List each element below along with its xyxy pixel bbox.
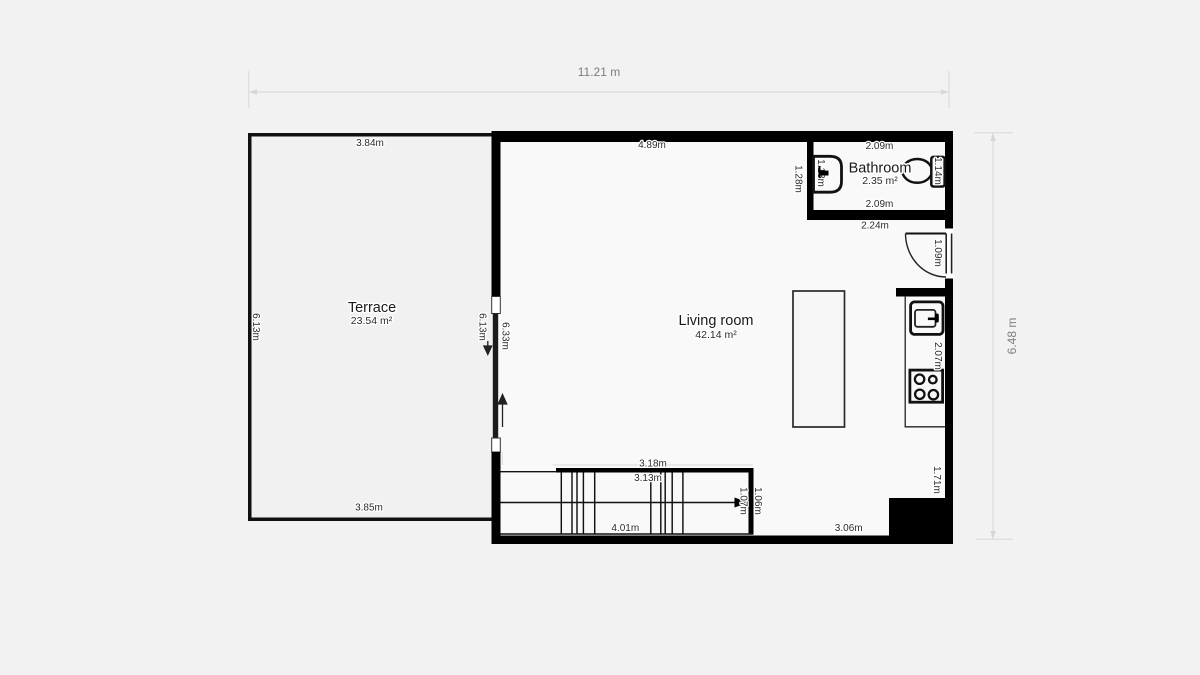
svg-text:2.09m: 2.09m [866, 199, 894, 210]
svg-text:4.01m: 4.01m [611, 523, 639, 534]
svg-text:1.14m: 1.14m [932, 157, 943, 185]
svg-text:Living room: Living room [679, 313, 754, 329]
svg-text:3.13m: 3.13m [634, 473, 662, 484]
svg-text:1.07m: 1.07m [737, 487, 748, 515]
svg-text:2.09m: 2.09m [866, 141, 894, 152]
svg-text:Terrace: Terrace [348, 300, 396, 316]
svg-text:3.18m: 3.18m [639, 459, 667, 470]
svg-text:1.28m: 1.28m [792, 165, 803, 193]
svg-text:3.84m: 3.84m [356, 138, 384, 149]
svg-text:2.07m: 2.07m [932, 342, 943, 370]
svg-text:6.48 m: 6.48 m [1005, 318, 1019, 355]
svg-text:6.13m: 6.13m [250, 313, 261, 341]
svg-text:11.21 m: 11.21 m [578, 65, 620, 79]
svg-text:23.54 m²: 23.54 m² [351, 315, 393, 327]
svg-text:2.35 m²: 2.35 m² [862, 175, 898, 187]
svg-text:42.14 m²: 42.14 m² [695, 329, 737, 341]
svg-text:3.06m: 3.06m [835, 523, 863, 534]
svg-text:2.24m: 2.24m [861, 221, 889, 232]
svg-text:1.71m: 1.71m [931, 466, 942, 494]
svg-text:6.13m: 6.13m [476, 313, 487, 341]
svg-text:6.33m: 6.33m [499, 322, 510, 350]
svg-text:1.09m: 1.09m [932, 239, 943, 267]
svg-text:1.06m: 1.06m [752, 487, 763, 515]
svg-text:3.85m: 3.85m [355, 503, 383, 514]
svg-text:4.89m: 4.89m [638, 140, 666, 151]
